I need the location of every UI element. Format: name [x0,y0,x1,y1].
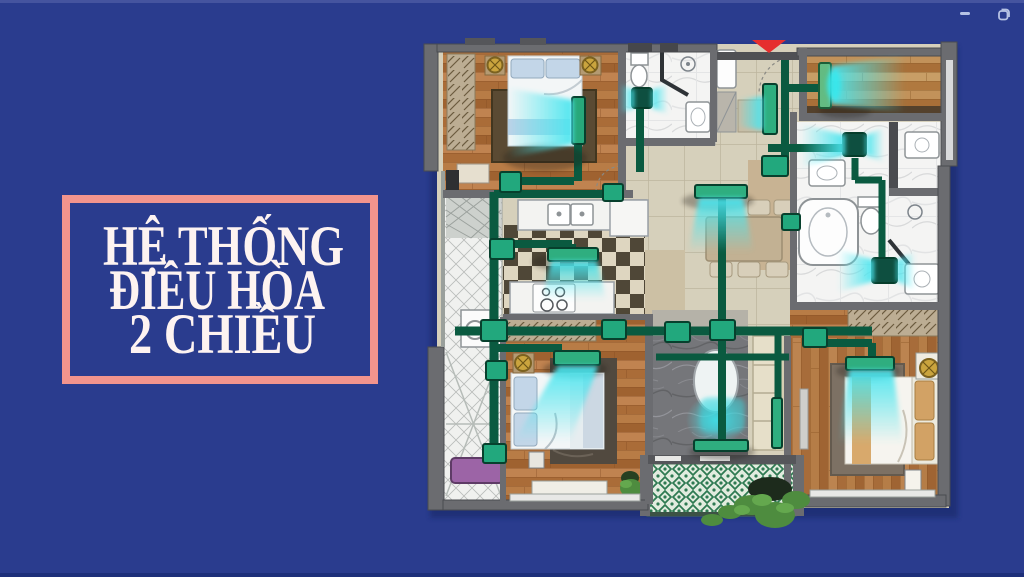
svg-text:2 CHIỀU: 2 CHIỀU [129,302,316,366]
